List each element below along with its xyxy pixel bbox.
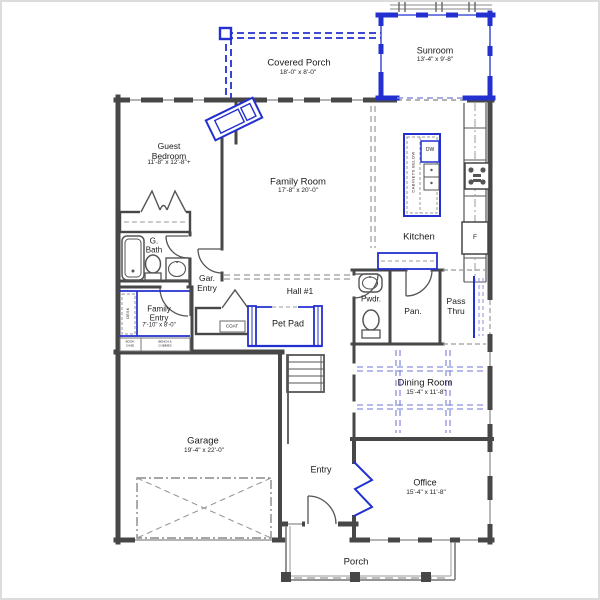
toilet xyxy=(146,255,161,273)
office-french-doors xyxy=(354,462,372,516)
floor-plan-page: Sunroom 13'-4" x 9'-8" Covered Porch 18'… xyxy=(0,0,600,600)
range xyxy=(465,163,489,189)
kitchen-counter-south xyxy=(378,253,437,269)
fireplace xyxy=(206,98,262,141)
deck-edge xyxy=(390,2,492,12)
kitchen-counter-east xyxy=(462,103,489,282)
porch-column xyxy=(281,572,291,582)
porch-outline xyxy=(281,526,455,582)
porch-column xyxy=(350,572,360,582)
refrigerator-box xyxy=(462,222,488,254)
floor-plan-drawing xyxy=(0,0,600,600)
dishwasher-box xyxy=(421,141,439,162)
bench-cubbies-box xyxy=(141,338,190,351)
guest-bath-fixtures xyxy=(122,236,189,280)
kitchen-island xyxy=(404,134,440,216)
porch-column xyxy=(421,572,431,582)
pet-pad-room xyxy=(248,306,322,346)
coat-label-box xyxy=(220,321,245,332)
garage-door xyxy=(137,478,271,538)
coat-closet xyxy=(196,290,250,334)
stairs xyxy=(287,355,324,444)
powder-toilet xyxy=(363,310,379,330)
guest-closet xyxy=(120,191,190,232)
dining-ceiling-treatment xyxy=(357,350,487,433)
powder-fixtures xyxy=(359,274,382,338)
family-entry-builtins xyxy=(120,291,190,351)
covered-porch-outline xyxy=(220,28,381,98)
sunroom-walls xyxy=(377,11,494,98)
book-case-box xyxy=(120,338,141,351)
